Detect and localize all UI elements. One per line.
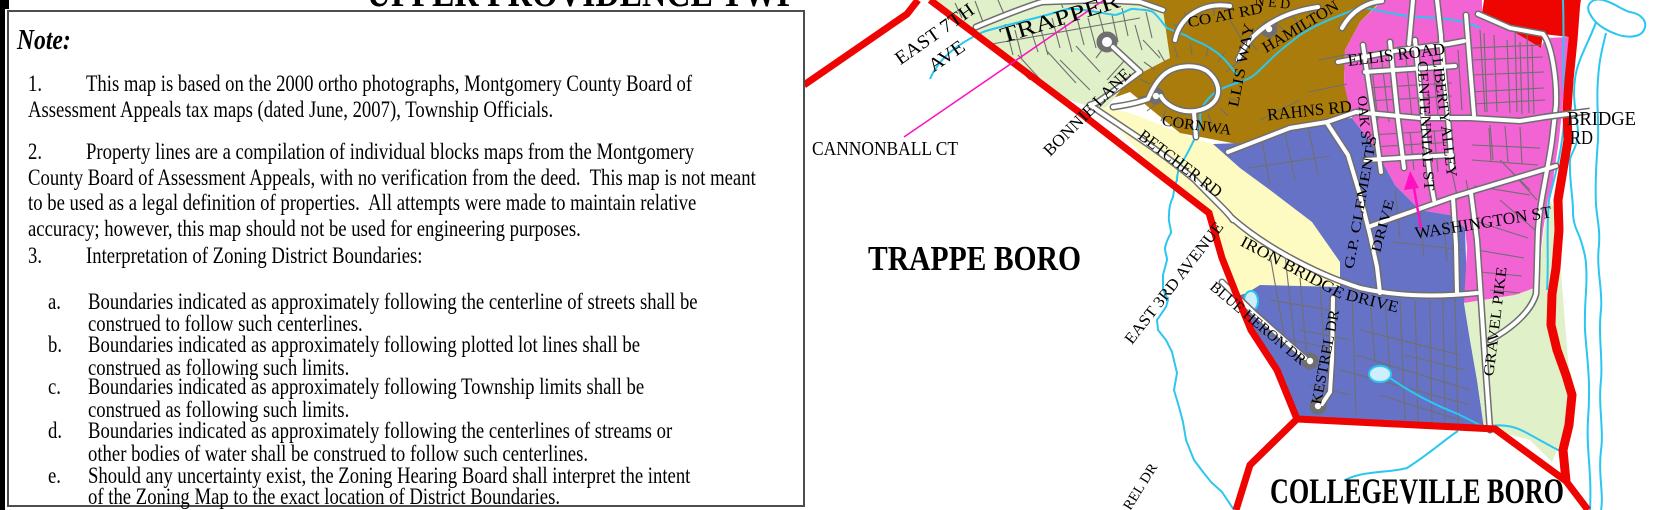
svg-text:RD: RD [1570,127,1593,149]
svg-text:TRAPPE BORO: TRAPPE BORO [868,239,1081,278]
svg-text:EAST 3RD AVENUE: EAST 3RD AVENUE [1122,219,1228,348]
svg-text:CANNONBALL CT: CANNONBALL CT [812,138,958,160]
svg-text:COLLEGEVILLE BORO: COLLEGEVILLE BORO [1270,471,1564,510]
svg-text:REL DR: REL DR [1121,461,1162,510]
